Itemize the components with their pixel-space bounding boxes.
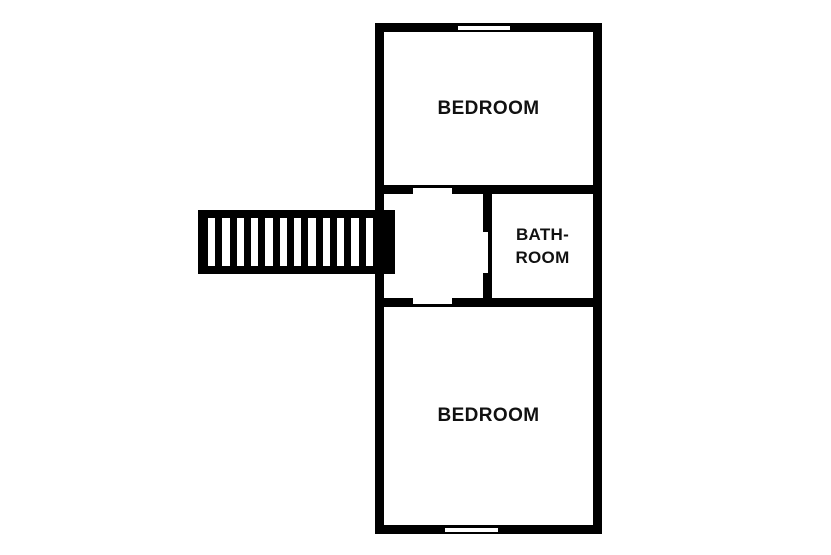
room-bedroom-top-label: BEDROOM	[437, 98, 539, 120]
floor-plan: BEDROOM BATH- ROOM BEDROOM	[0, 0, 831, 555]
staircase-treads	[208, 218, 373, 266]
stair-tread	[208, 218, 215, 266]
door-bottom-bedroom	[413, 298, 452, 304]
stair-tread	[308, 218, 315, 266]
room-bedroom-bottom-label: BEDROOM	[437, 405, 539, 427]
staircase	[198, 210, 395, 274]
stair-tread	[280, 218, 287, 266]
room-bedroom-top: BEDROOM	[384, 32, 593, 185]
door-top-bedroom	[413, 188, 452, 194]
stair-tread	[237, 218, 244, 266]
room-bathroom-label: BATH- ROOM	[515, 223, 569, 269]
stair-tread	[351, 218, 358, 266]
window-bottom-bedroom	[445, 528, 498, 532]
stair-tread	[337, 218, 344, 266]
door-bathroom	[483, 232, 488, 273]
stair-tread	[222, 218, 229, 266]
stair-tread	[323, 218, 330, 266]
stair-tread	[265, 218, 272, 266]
stair-tread	[294, 218, 301, 266]
room-bathroom-label-line2: ROOM	[515, 248, 569, 267]
wall-outer-right	[593, 23, 602, 534]
stair-tread	[251, 218, 258, 266]
stair-tread	[366, 218, 373, 266]
window-top-bedroom	[458, 26, 510, 30]
room-bedroom-bottom: BEDROOM	[384, 307, 593, 525]
wall-outer-left	[375, 23, 384, 534]
room-bathroom: BATH- ROOM	[492, 194, 593, 298]
room-bathroom-label-line1: BATH-	[516, 225, 569, 244]
